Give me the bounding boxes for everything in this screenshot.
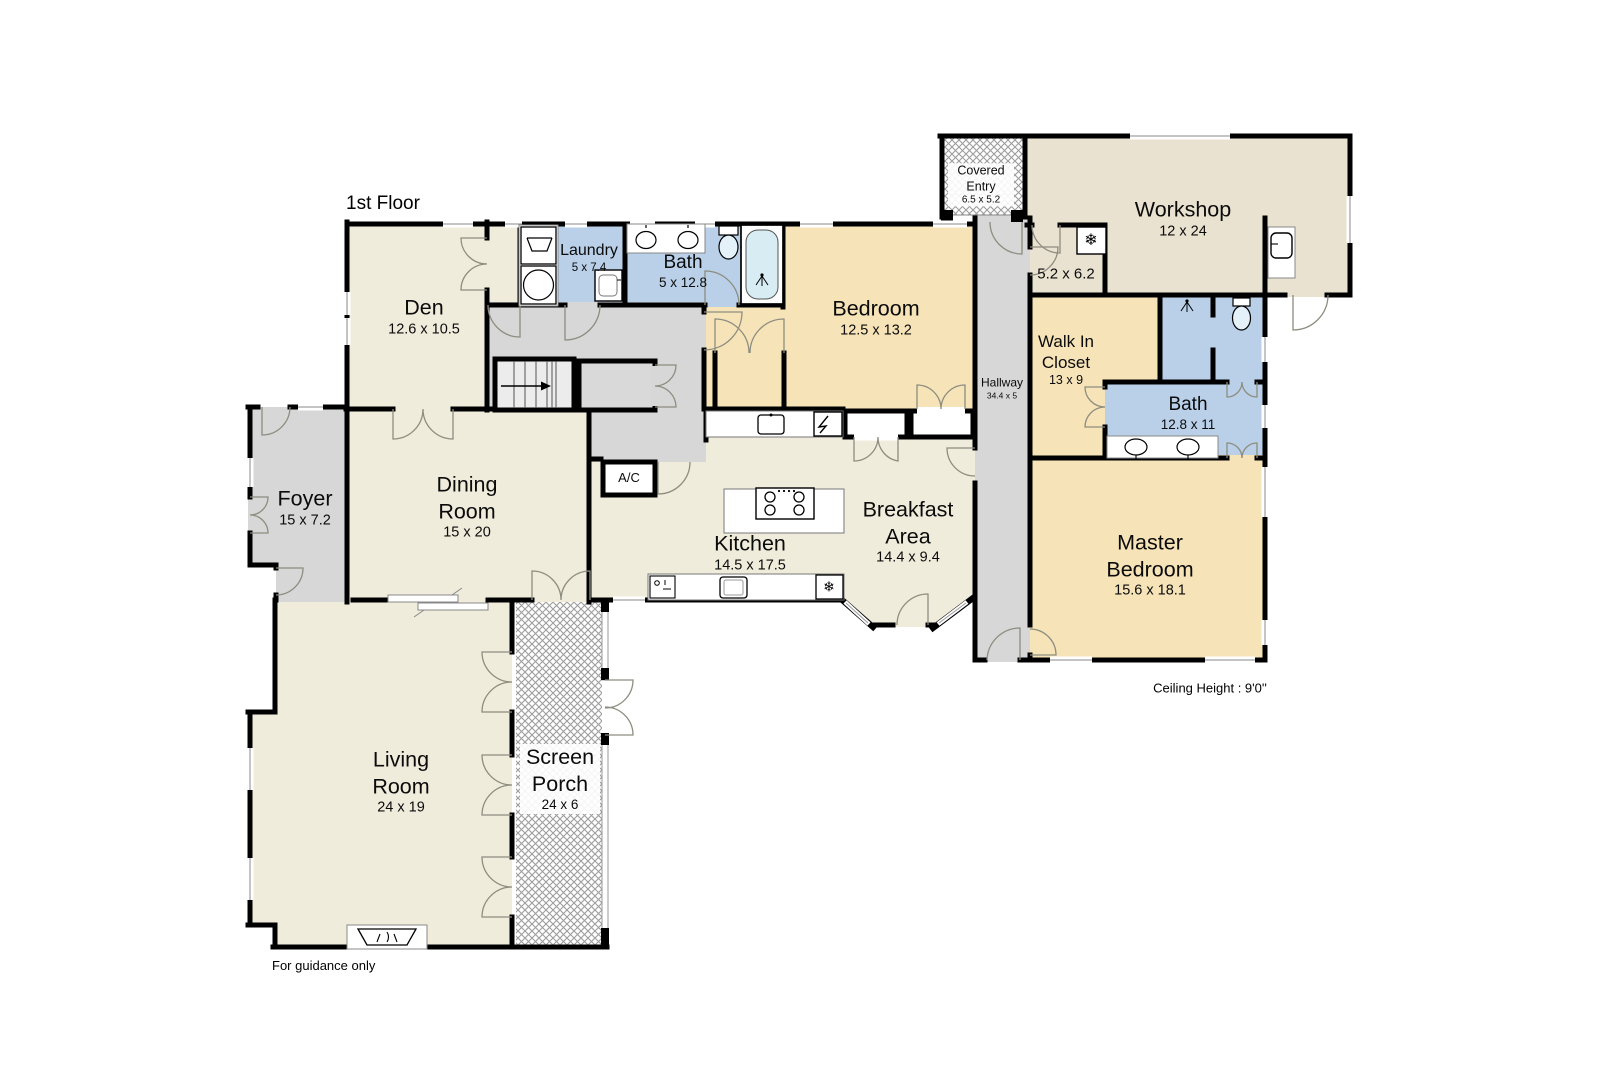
room-name: Bedroom [832, 296, 919, 323]
room-label-master-bath: Bath 12.8 x 11 [1161, 393, 1216, 433]
room-label-kitchen: Kitchen 14.5 x 17.5 [714, 531, 786, 576]
ac-label: A/C [618, 470, 640, 486]
room-name: Walk In Closet [1037, 331, 1095, 373]
floor-plan-drawing [0, 0, 1600, 1067]
bathtub-basin [746, 230, 778, 299]
toilet-tank-icon [1233, 298, 1250, 306]
washer [521, 227, 556, 264]
entry-post [941, 210, 953, 222]
guidance-footnote: For guidance only [272, 958, 375, 973]
staircase [495, 359, 574, 410]
room-label-workshop: Workshop 12 x 24 [1135, 197, 1231, 242]
dryer-drum-icon [524, 270, 554, 300]
hallway-floor [975, 215, 1030, 662]
room-label-bedroom: Bedroom 12.5 x 13.2 [832, 296, 919, 341]
room-dims: 12.6 x 10.5 [388, 321, 460, 339]
porch-exterior-doors [605, 680, 633, 735]
room-dims: 5.2 x 6.2 [1037, 266, 1095, 285]
room-label-master-bedroom: Master Bedroom 15.6 x 18.1 [1098, 529, 1202, 600]
sink-icon [1125, 439, 1147, 455]
room-dims: 24 x 6 [520, 797, 600, 814]
room-label-den: Den 12.6 x 10.5 [388, 295, 460, 340]
room-dims: 14.5 x 17.5 [714, 557, 786, 575]
room-label-bath-upper: Bath 5 x 12.8 [659, 251, 707, 291]
sink-icon [1177, 439, 1199, 455]
vestibule-floor [488, 222, 522, 307]
entry-post [1011, 210, 1023, 222]
room-label-utility: 5.2 x 6.2 [1037, 266, 1095, 285]
room-name: Breakfast Area [858, 496, 958, 549]
window-kitchen-bottom [613, 597, 645, 604]
porch-screen-wall [601, 600, 609, 947]
room-name: Master Bedroom [1098, 529, 1202, 582]
toilet-tank-icon [719, 226, 738, 235]
room-label-screen-porch: Screen Porch 24 x 6 [520, 744, 600, 814]
toilet-icon [719, 235, 738, 259]
room-name: Dining Room [427, 471, 507, 524]
room-dims: 15.6 x 18.1 [1098, 583, 1202, 601]
master-vanity [1107, 436, 1218, 458]
sink-icon [636, 232, 656, 249]
room-dims: 12.8 x 11 [1161, 416, 1216, 433]
room-label-living: Living Room 24 x 19 [364, 746, 438, 817]
room-dims: 34.4 x 5 [981, 390, 1023, 401]
workshop-exterior-door [1293, 295, 1328, 330]
fireplace-firebox [358, 929, 416, 945]
breakfast-closet-door-gap [854, 434, 898, 441]
room-label-foyer: Foyer 15 x 7.2 [278, 486, 333, 531]
room-label-hallway: Hallway 34.4 x 5 [981, 375, 1023, 400]
room-name: Hallway [981, 375, 1023, 390]
room-name: Screen Porch [520, 744, 600, 797]
room-label-walk-in-closet: Walk In Closet 13 x 9 [1037, 331, 1095, 389]
room-dims: 15 x 7.2 [278, 512, 333, 530]
room-dims: 12 x 24 [1135, 223, 1231, 241]
freezer-snowflake-icon: ❄ [1084, 230, 1097, 250]
room-label-breakfast: Breakfast Area 14.4 x 9.4 [858, 496, 958, 567]
breakfast-closet [845, 411, 907, 437]
room-label-laundry: Laundry 5 x 7.4 [560, 241, 618, 275]
room-dims: 14.4 x 9.4 [858, 550, 958, 568]
kitchen-sink-icon [758, 415, 784, 434]
room-name: Den [388, 295, 460, 322]
room-name: Bath [659, 251, 707, 275]
cooktop [756, 488, 814, 519]
room-label-covered-entry: Covered Entry 6.5 x 5.2 [948, 163, 1014, 206]
room-dims: 5 x 7.4 [560, 261, 618, 275]
electrical-panel [814, 412, 842, 436]
hall-closet [579, 361, 655, 410]
dishwasher [650, 576, 675, 598]
room-name: Living Room [364, 746, 438, 799]
room-dims: 12.5 x 13.2 [832, 322, 919, 340]
room-name: Foyer [278, 486, 333, 513]
room-dims: 24 x 19 [364, 800, 438, 818]
utility-sink-icon [1271, 233, 1292, 258]
room-dims: 15 x 20 [427, 525, 507, 543]
sink-icon [678, 232, 698, 249]
room-dims: 6.5 x 5.2 [948, 194, 1014, 206]
room-name: Kitchen [714, 531, 786, 558]
plan-title: 1st Floor [346, 193, 420, 215]
room-name: Bath [1161, 393, 1216, 417]
laundry-sink-basin [599, 275, 617, 296]
room-label-dining: Dining Room 15 x 20 [427, 471, 507, 542]
room-dims: 5 x 12.8 [659, 274, 707, 291]
floor-plan: 1st Floor Den 12.6 x 10.5 Laundry 5 x 7.… [0, 0, 1600, 1067]
room-name: Laundry [560, 241, 618, 261]
room-dims: 13 x 9 [1037, 373, 1095, 389]
ceiling-height-note: Ceiling Height : 9'0'' [1153, 681, 1267, 696]
room-name: Workshop [1135, 197, 1231, 224]
room-name: Covered Entry [948, 163, 1014, 194]
refrigerator-snowflake-icon: ❄ [823, 579, 835, 596]
toilet-icon [1233, 306, 1251, 330]
